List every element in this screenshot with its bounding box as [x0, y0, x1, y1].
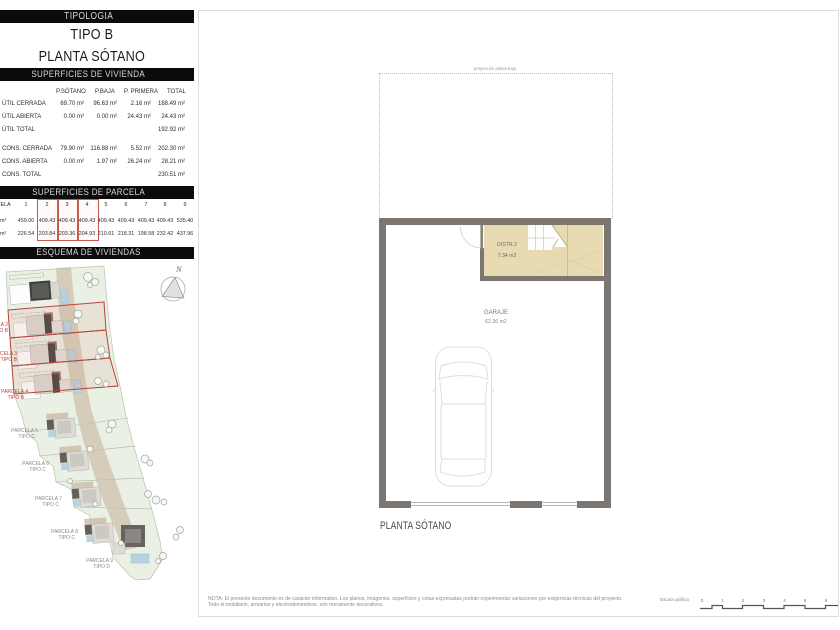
svg-text:0: 0 — [701, 598, 704, 603]
svg-text:3: 3 — [763, 598, 766, 603]
svg-text:5: 5 — [804, 598, 807, 603]
svg-text:6: 6 — [825, 598, 828, 603]
svg-text:4: 4 — [783, 598, 786, 603]
svg-text:1: 1 — [721, 598, 724, 603]
svg-text:2: 2 — [742, 598, 745, 603]
